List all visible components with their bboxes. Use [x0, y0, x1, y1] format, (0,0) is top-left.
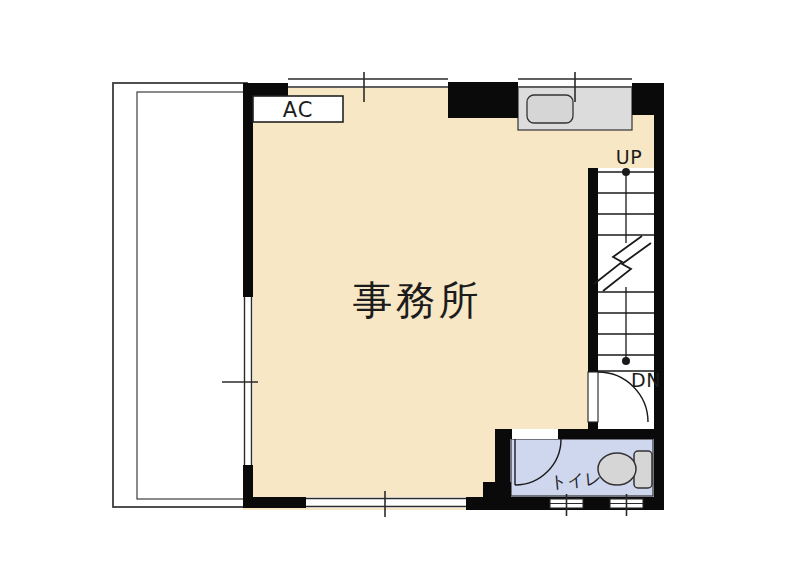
stairs-down-label: DN [631, 369, 661, 391]
stair-start-dot [622, 168, 630, 176]
wall-stair-left [588, 168, 598, 372]
wall-bottom-left [243, 497, 306, 508]
balcony-inner-edge [137, 92, 247, 499]
wall-top-mid-column [448, 82, 518, 118]
sink-basin [527, 95, 573, 123]
toilet-icon [598, 451, 652, 488]
floor-plan-canvas: AC 事務所 UP DN トイレ [0, 0, 800, 587]
ac-unit-box: AC [253, 96, 343, 122]
toilet-bowl [598, 453, 636, 485]
wall-toilet-top-left [495, 429, 512, 439]
office-label: 事務所 [353, 277, 482, 323]
wall-left-upper [243, 83, 253, 297]
stair-end-dot [622, 357, 630, 365]
floor-plan: AC 事務所 UP DN トイレ [0, 0, 800, 587]
wall-right [654, 83, 664, 510]
wall-toilet-top-right [558, 429, 664, 439]
stairs-up-label: UP [616, 146, 642, 168]
stair-door-leaf [588, 372, 598, 422]
balcony [113, 83, 247, 507]
wall-stair-left-stub [588, 422, 598, 430]
ac-label: AC [283, 98, 314, 122]
wall-toilet-step [483, 482, 511, 497]
toilet-door-opening [512, 429, 558, 439]
